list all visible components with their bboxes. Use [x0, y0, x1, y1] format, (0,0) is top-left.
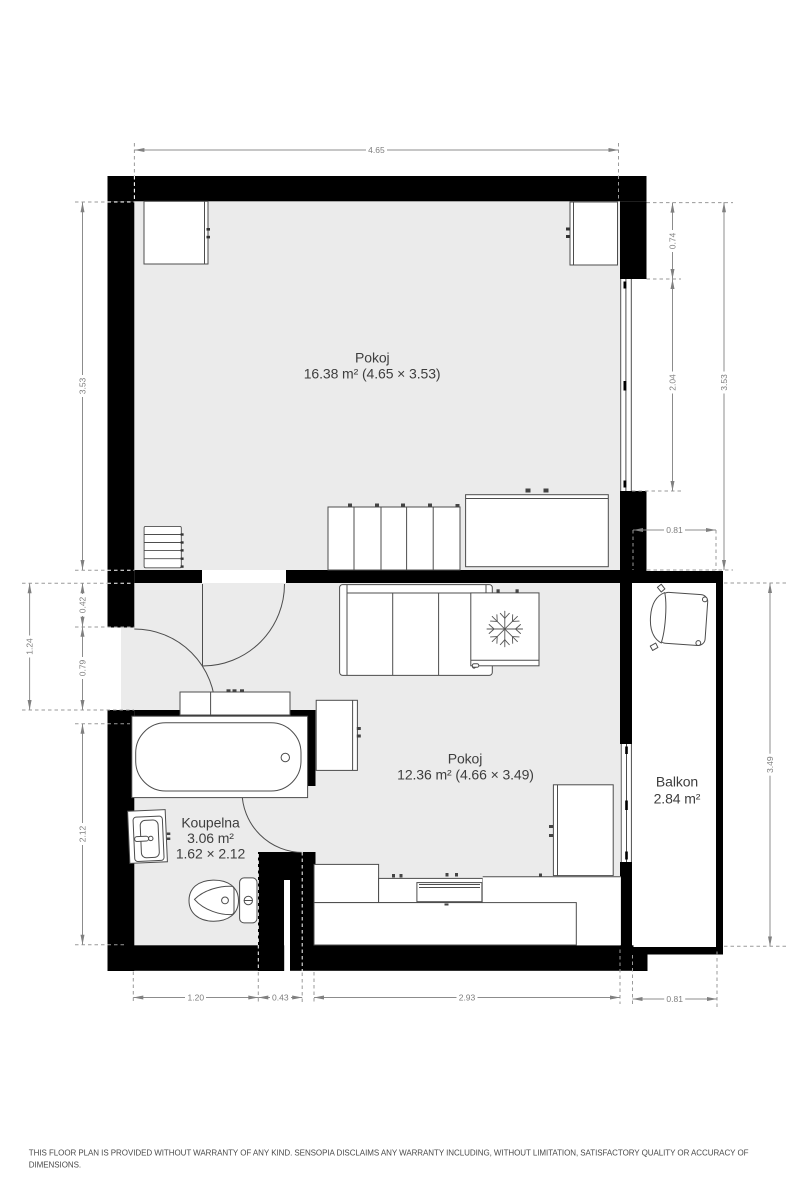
svg-text:4.65: 4.65 — [368, 145, 385, 155]
svg-text:2.12: 2.12 — [78, 825, 88, 842]
svg-text:Balkon: Balkon — [656, 773, 698, 789]
svg-text:2.84 m²: 2.84 m² — [654, 791, 701, 807]
svg-text:1.20: 1.20 — [188, 993, 205, 1003]
svg-text:3.49: 3.49 — [765, 756, 775, 773]
svg-text:3.53: 3.53 — [719, 374, 729, 391]
svg-text:Pokoj: Pokoj — [355, 349, 390, 365]
svg-text:1.24: 1.24 — [25, 638, 35, 655]
svg-text:1.62 × 2.12: 1.62 × 2.12 — [176, 845, 246, 861]
svg-text:12.36 m² (4.66 × 3.49): 12.36 m² (4.66 × 3.49) — [397, 767, 534, 783]
svg-text:THIS FLOOR PLAN IS PROVIDED WI: THIS FLOOR PLAN IS PROVIDED WITHOUT WARR… — [29, 1149, 749, 1158]
svg-text:0.43: 0.43 — [272, 993, 289, 1003]
svg-text:0.79: 0.79 — [78, 659, 88, 676]
svg-text:Pokoj: Pokoj — [448, 751, 483, 767]
svg-text:2.93: 2.93 — [459, 993, 476, 1003]
svg-text:DIMENSIONS.: DIMENSIONS. — [29, 1161, 81, 1170]
svg-text:0.74: 0.74 — [668, 232, 678, 249]
svg-text:0.81: 0.81 — [666, 994, 683, 1004]
svg-text:Koupelna: Koupelna — [181, 815, 240, 831]
svg-text:0.81: 0.81 — [666, 525, 683, 535]
svg-text:2.04: 2.04 — [668, 374, 678, 391]
svg-text:0.42: 0.42 — [78, 596, 88, 613]
svg-text:16.38 m² (4.65 × 3.53): 16.38 m² (4.65 × 3.53) — [304, 365, 441, 381]
svg-text:3.06 m²: 3.06 m² — [187, 830, 234, 846]
svg-text:3.53: 3.53 — [78, 377, 88, 394]
